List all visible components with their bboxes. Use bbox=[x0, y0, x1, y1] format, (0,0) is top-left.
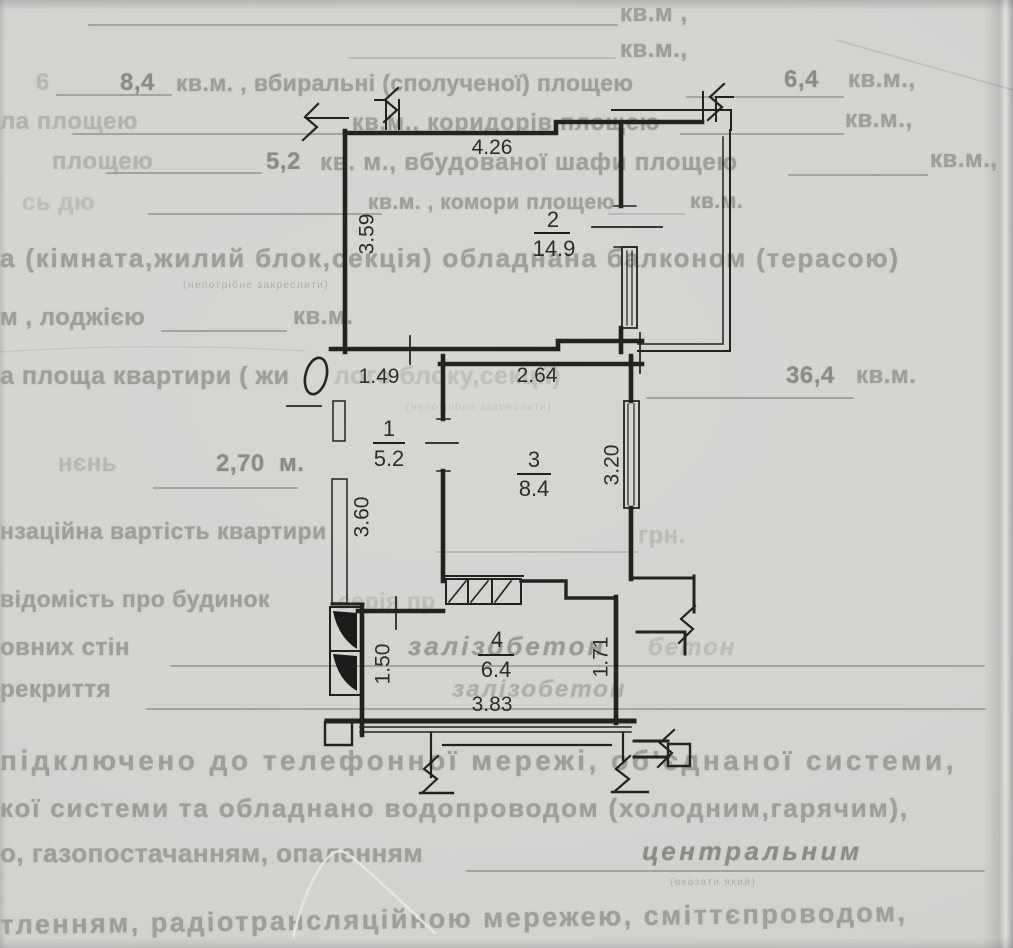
dim-room4-right: 1.71 bbox=[589, 637, 612, 678]
dim-hall-top: 1.49 bbox=[359, 365, 400, 388]
dim-room4-left: 1.50 bbox=[371, 644, 394, 685]
balcony-outline bbox=[638, 130, 730, 351]
lower-neighbor-wall bbox=[431, 733, 623, 777]
dim-room2-left: 3.59 bbox=[355, 214, 378, 255]
room-4-number: 4 bbox=[491, 627, 503, 652]
window-room2-balcony-icon bbox=[622, 247, 637, 328]
paper-marks bbox=[0, 40, 1013, 938]
room-2-area: 14.9 bbox=[533, 236, 576, 261]
ink-ellipse-mark bbox=[301, 356, 330, 397]
room-4-area: 6.4 bbox=[481, 657, 512, 682]
room-1-area: 5.2 bbox=[374, 446, 405, 471]
floor-plan: 2 14.9 1 5.2 3 8.4 4 6.4 4.26 3.59 1.49 … bbox=[0, 0, 1013, 948]
crease-top-right bbox=[836, 40, 1013, 90]
room-3-number: 3 bbox=[528, 447, 540, 472]
white-scratch bbox=[293, 851, 436, 938]
window-room3-icon bbox=[624, 401, 639, 508]
crease-left bbox=[0, 347, 305, 352]
scanned-floor-plan-page: кв.м , кв.м., 6 8,4 кв.м. , вбиральні (с… bbox=[0, 0, 1013, 948]
dim-hall-left: 3.60 bbox=[350, 497, 373, 538]
dim-room4-bottom: 3.83 bbox=[472, 693, 513, 716]
dim-room3-top: 2.64 bbox=[517, 364, 558, 387]
entry-door-leaf bbox=[333, 401, 345, 441]
room-3-area: 8.4 bbox=[519, 476, 550, 501]
room-1-number: 1 bbox=[383, 416, 395, 441]
room-2-number: 2 bbox=[547, 207, 559, 232]
plan-thin-walls bbox=[306, 92, 733, 793]
wall-break-icons bbox=[303, 84, 724, 793]
dim-room3-right: 3.20 bbox=[600, 445, 623, 486]
dim-top: 4.26 bbox=[472, 136, 513, 159]
